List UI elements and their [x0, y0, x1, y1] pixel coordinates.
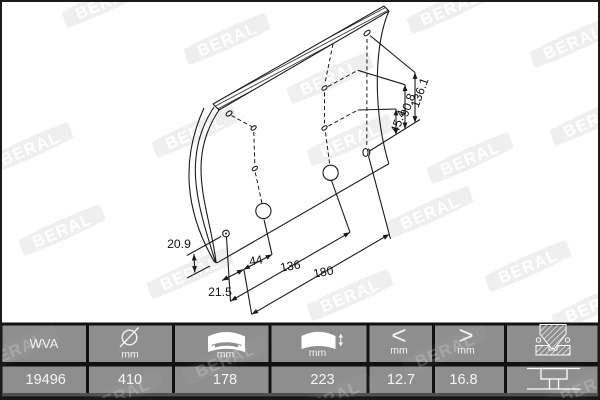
svg-text:mm: mm: [390, 345, 408, 357]
svg-text:mm: mm: [309, 347, 327, 359]
svg-text:44: 44: [248, 252, 264, 268]
svg-text:223: 223: [310, 372, 334, 388]
svg-text:16.8: 16.8: [449, 372, 477, 388]
svg-text:20.9: 20.9: [167, 237, 191, 251]
svg-text:mm: mm: [121, 349, 139, 361]
svg-text:19496: 19496: [26, 372, 66, 388]
svg-text:21.5: 21.5: [208, 285, 232, 299]
